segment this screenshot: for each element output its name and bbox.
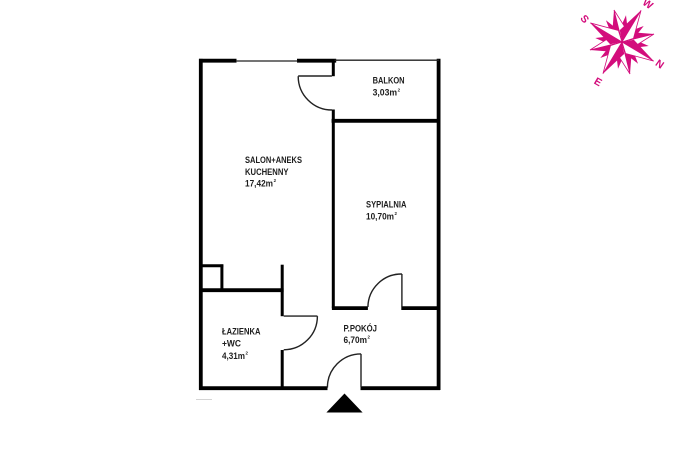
svg-text:ŁAZIENKA: ŁAZIENKA — [222, 327, 261, 338]
svg-text:4,31m: 4,31m — [222, 351, 245, 362]
svg-text:3,03m: 3,03m — [373, 88, 398, 99]
svg-text:+WC: +WC — [222, 339, 241, 350]
svg-text:17,42m: 17,42m — [245, 178, 273, 189]
svg-text:BALKON: BALKON — [373, 76, 405, 87]
svg-text:6,70m: 6,70m — [344, 335, 368, 346]
svg-text:10,70m: 10,70m — [366, 212, 394, 223]
svg-text:SALON+ANEKS: SALON+ANEKS — [245, 155, 302, 166]
svg-text:P.POKÓJ: P.POKÓJ — [344, 323, 378, 335]
svg-text:SYPIALNIA: SYPIALNIA — [366, 200, 407, 211]
svg-text:KUCHENNY: KUCHENNY — [245, 167, 289, 178]
